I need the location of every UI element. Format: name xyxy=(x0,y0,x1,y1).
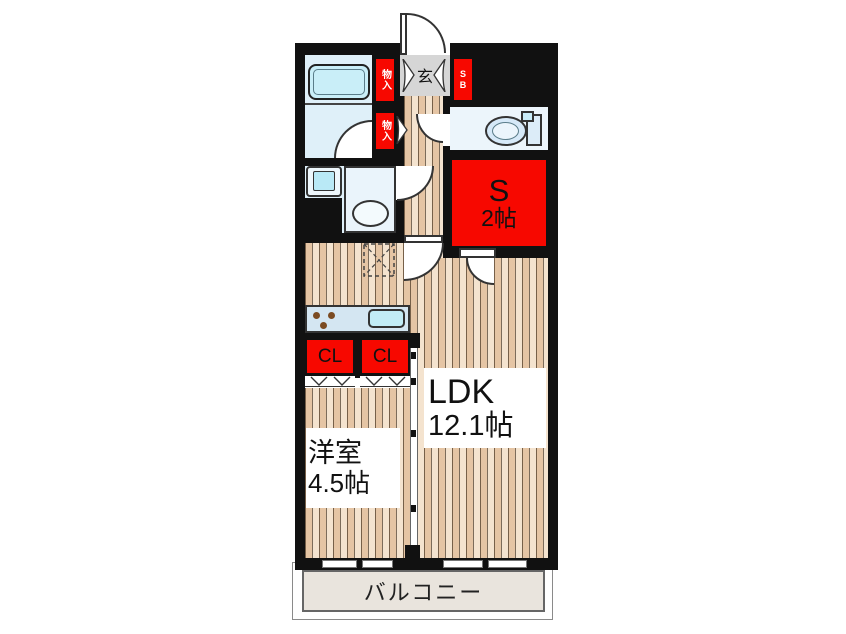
kitchen-counter xyxy=(305,305,410,333)
sliding-door-stop xyxy=(411,505,416,512)
ldk-name: LDK xyxy=(428,374,546,411)
western-room-area: 4.5帖 xyxy=(308,469,400,499)
ldk-window xyxy=(488,560,527,568)
ldk-label: LDK 12.1帖 xyxy=(424,368,546,448)
bathtub-inner-line xyxy=(313,69,365,95)
service-room-area: 2帖 xyxy=(481,207,517,230)
service-room-name: S xyxy=(489,175,510,207)
washing-machine-pan-inner xyxy=(313,171,335,191)
toilet-door-gap xyxy=(443,114,450,146)
wall-service-room-left xyxy=(443,145,450,258)
service-room-door-leaf xyxy=(459,248,496,258)
storage-upper: 物入 xyxy=(375,58,395,102)
bathroom-divider-line xyxy=(305,103,372,105)
vanity-unit xyxy=(344,166,396,233)
entrance-label-text: 玄 xyxy=(417,63,433,87)
wall-partition-bottom xyxy=(405,545,420,558)
toilet-bowl-inner xyxy=(492,122,519,140)
storage-lower-label: 物入 xyxy=(378,120,393,142)
vanity-basin xyxy=(352,200,389,227)
storage-lower-bifold-door xyxy=(396,116,408,144)
entrance-label: 玄 xyxy=(400,62,450,88)
washing-machine-pan xyxy=(306,166,342,197)
closet-left-bifold-doors xyxy=(305,376,355,387)
ldk-area: 12.1帖 xyxy=(428,411,546,442)
sliding-door-stop xyxy=(411,352,416,359)
wall-washroom-corner-block xyxy=(305,198,342,233)
wall-partition-top xyxy=(410,333,420,348)
bathtub xyxy=(308,64,370,100)
sliding-door-stop xyxy=(411,378,416,385)
hall-door-leaf xyxy=(404,235,443,243)
balcony-label: バルコニー xyxy=(364,575,484,607)
stove-burner xyxy=(328,312,335,319)
ldk-window xyxy=(443,560,483,568)
closet-right: CL xyxy=(360,338,410,375)
stove-burner xyxy=(320,322,327,329)
service-room: S 2帖 xyxy=(450,158,548,248)
closet-left-label: CL xyxy=(318,346,342,368)
wall-left xyxy=(295,43,305,570)
storage-lower: 物入 xyxy=(375,112,395,150)
closet-left: CL xyxy=(305,338,355,375)
wall-bathroom-bottom xyxy=(295,158,372,166)
closet-right-bifold-doors xyxy=(360,376,410,387)
entrance-door-leaf xyxy=(400,13,407,55)
wall-washroom-bottom xyxy=(295,233,404,243)
shoe-box: SB xyxy=(453,58,473,101)
toilet-bowl xyxy=(485,116,527,146)
wall-right xyxy=(548,107,558,570)
stove-burner xyxy=(313,312,320,319)
storage-upper-label: 物入 xyxy=(378,69,393,91)
refrigerator-space xyxy=(363,243,395,277)
wall-under-toilet xyxy=(450,150,548,158)
toilet-cistern-box xyxy=(521,111,534,122)
kitchen-sink xyxy=(368,309,405,328)
western-room-name: 洋室 xyxy=(308,438,400,469)
wall-hall-right-upper xyxy=(443,96,450,115)
balcony: バルコニー xyxy=(302,570,545,612)
shoe-box-label: SB xyxy=(458,69,468,91)
floor-plan: S 2帖 SB 物入 物入 CL CL xyxy=(0,0,846,634)
western-room-window xyxy=(322,560,357,568)
entrance-door-arc xyxy=(407,13,446,53)
sliding-door-stop xyxy=(411,430,416,437)
western-room-window xyxy=(362,560,393,568)
western-room-label: 洋室 4.5帖 xyxy=(306,428,400,508)
closet-right-label: CL xyxy=(373,346,397,368)
